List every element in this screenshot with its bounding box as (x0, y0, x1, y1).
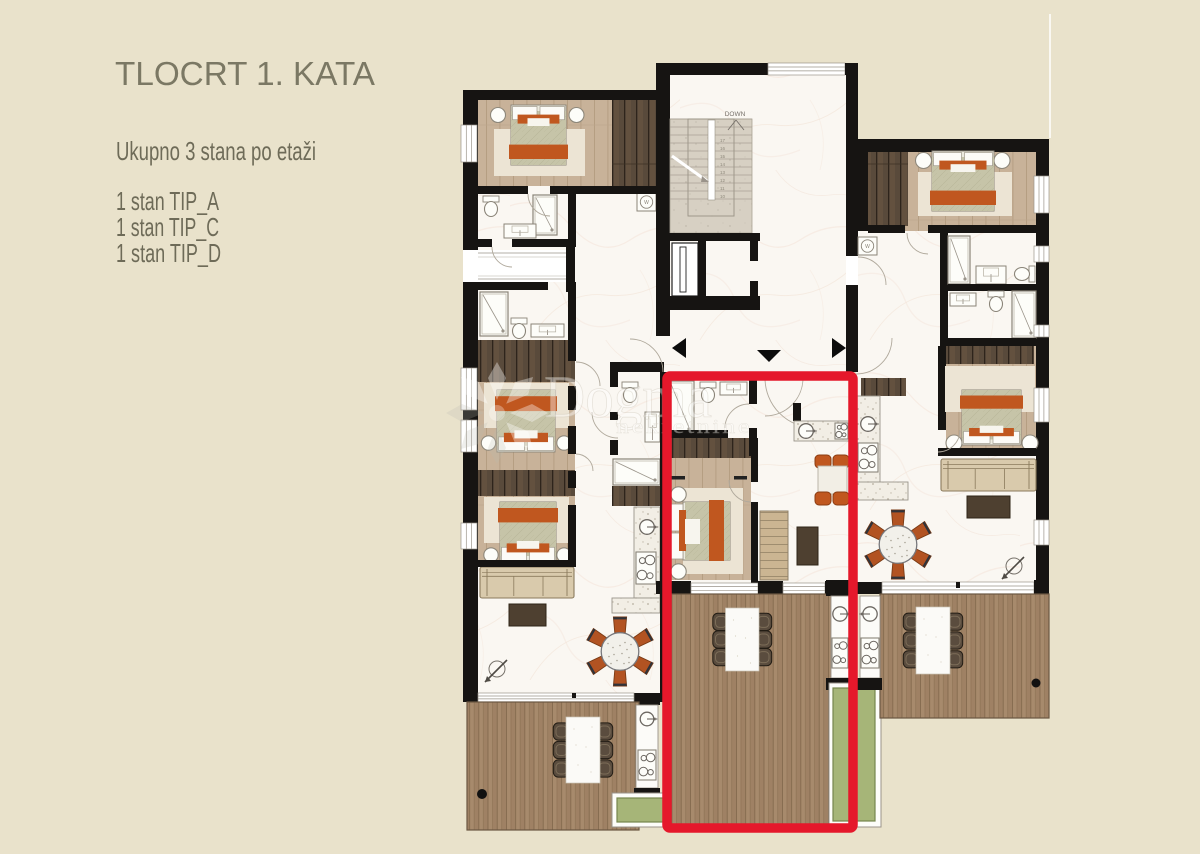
svg-text:12: 12 (720, 178, 726, 183)
svg-text:10: 10 (720, 194, 726, 199)
svg-text:15: 15 (720, 154, 726, 159)
svg-text:W: W (865, 244, 870, 250)
svg-text:11: 11 (720, 186, 725, 191)
svg-text:17: 17 (720, 138, 726, 143)
svg-text:Ukupno 3 stana po etaži: Ukupno 3 stana po etaži (116, 136, 316, 166)
svg-text:1 stan TIP_D: 1 stan TIP_D (116, 238, 221, 268)
svg-text:nekretnine: nekretnine (616, 416, 752, 438)
svg-text:W: W (644, 200, 649, 206)
svg-text:DOWN: DOWN (725, 111, 746, 118)
svg-text:TLOCRT 1. KATA: TLOCRT 1. KATA (115, 55, 375, 92)
svg-text:14: 14 (720, 162, 726, 167)
svg-text:16: 16 (720, 146, 726, 151)
svg-text:13: 13 (720, 170, 726, 175)
